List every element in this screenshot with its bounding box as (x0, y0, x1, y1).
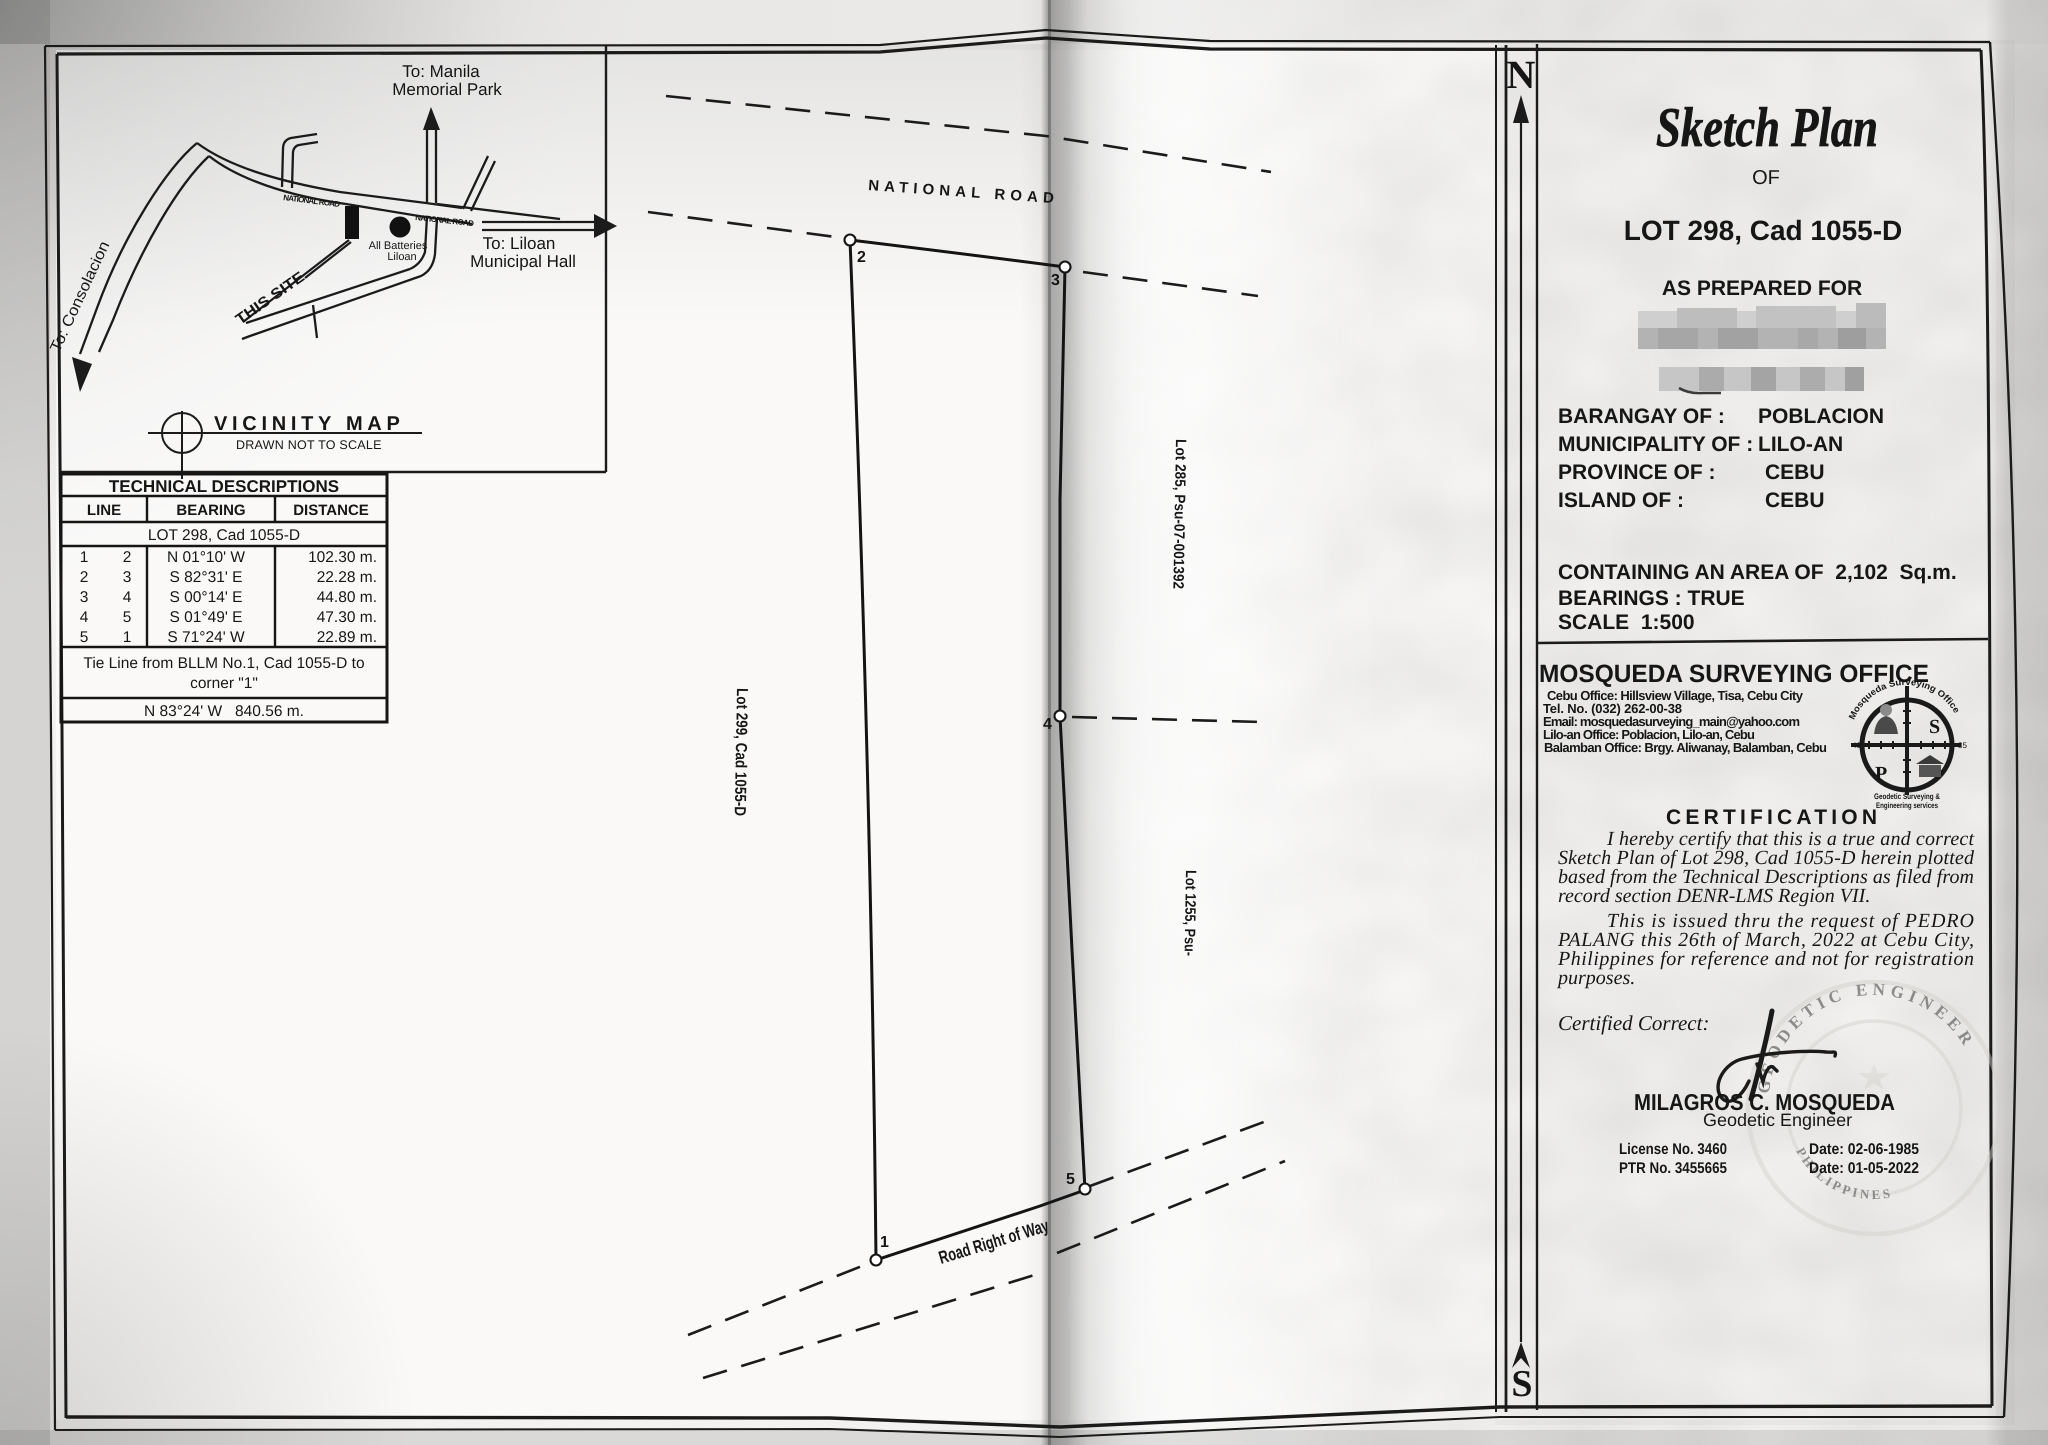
svg-text:TECHNICAL DESCRIPTIONS: TECHNICAL DESCRIPTIONS (109, 477, 339, 496)
svg-text:S 82°31' E: S 82°31' E (170, 569, 243, 586)
svg-text:LOT 298, Cad 1055-D: LOT 298, Cad 1055-D (1624, 215, 1903, 246)
svg-text:CEBU: CEBU (1765, 461, 1825, 484)
svg-text:S: S (1929, 716, 1940, 738)
svg-text:DISTANCE: DISTANCE (293, 502, 369, 519)
svg-text:License No. 3460: License No. 3460 (1619, 1141, 1727, 1158)
svg-text:BEARINGS : TRUE: BEARINGS : TRUE (1558, 587, 1745, 610)
svg-text:CERTIFICATION: CERTIFICATION (1666, 806, 1881, 829)
svg-text:Date: 02-06-1985: Date: 02-06-1985 (1809, 1141, 1919, 1158)
svg-text:1: 1 (80, 549, 89, 566)
svg-text:Memorial Park: Memorial Park (392, 80, 502, 99)
svg-text:Lot 299, Cad 1055-D: Lot 299, Cad 1055-D (731, 688, 750, 816)
svg-text:Sketch Plan: Sketch Plan (1656, 97, 1878, 159)
svg-text:4: 4 (123, 589, 132, 606)
svg-text:To: Manila: To: Manila (402, 62, 480, 81)
svg-text:3: 3 (123, 569, 132, 586)
svg-text:Date: 01-05-2022: Date: 01-05-2022 (1809, 1160, 1919, 1177)
svg-text:22.89 m.: 22.89 m. (317, 629, 377, 646)
svg-text:purposes.: purposes. (1556, 967, 1635, 989)
svg-text:N 01°10' W: N 01°10' W (167, 549, 245, 566)
svg-text:Engineering services: Engineering services (1876, 801, 1938, 810)
svg-text:3: 3 (1051, 272, 1060, 289)
svg-text:N 83°24' W 840.56 m.: N 83°24' W 840.56 m. (144, 703, 304, 720)
svg-text:record section DENR-LMS Region: record section DENR-LMS Region VII. (1558, 885, 1870, 907)
svg-text:5: 5 (1066, 1171, 1075, 1188)
svg-text:Tie Line from BLLM No.1, Cad 1: Tie Line from BLLM No.1, Cad 1055-D to (83, 655, 364, 672)
svg-text:85: 85 (1958, 741, 1967, 750)
svg-text:2: 2 (857, 249, 866, 266)
svg-text:MOSQUEDA SURVEYING OFFICE: MOSQUEDA SURVEYING OFFICE (1539, 660, 1929, 688)
svg-text:1: 1 (880, 1234, 889, 1251)
svg-text:N: N (1507, 52, 1536, 97)
svg-text:5: 5 (80, 629, 89, 646)
svg-text:PROVINCE OF :: PROVINCE OF : (1558, 461, 1716, 484)
svg-text:1: 1 (123, 629, 132, 646)
svg-text:corner "1": corner "1" (190, 675, 258, 692)
svg-text:S 00°14' E: S 00°14' E (170, 589, 243, 606)
svg-text:MUNICIPALITY OF :: MUNICIPALITY OF : (1558, 433, 1753, 456)
svg-text:ISLAND OF :: ISLAND OF : (1558, 489, 1684, 512)
svg-text:Lot 285, Psu-07-001392: Lot 285, Psu-07-001392 (1169, 439, 1189, 589)
svg-text:Balamban Office: Brgy. Aliwana: Balamban Office: Brgy. Aliwanay, Balamba… (1544, 740, 1827, 755)
svg-text:Certified Correct:: Certified Correct: (1558, 1011, 1709, 1035)
svg-text:SCALE 1:500: SCALE 1:500 (1558, 611, 1695, 634)
svg-text:102.30 m.: 102.30 m. (308, 549, 377, 566)
svg-text:3: 3 (80, 589, 89, 606)
svg-text:S 01°49' E: S 01°49' E (170, 609, 243, 626)
svg-text:Geodetic Surveying &: Geodetic Surveying & (1874, 792, 1940, 801)
svg-text:Municipal Hall: Municipal Hall (470, 252, 576, 271)
svg-text:49: 49 (1852, 741, 1861, 750)
svg-text:47.30 m.: 47.30 m. (317, 609, 377, 626)
svg-text:S: S (1511, 1363, 1532, 1405)
svg-text:VICINITY MAP: VICINITY MAP (214, 413, 404, 435)
svg-text:5: 5 (123, 609, 132, 626)
svg-text:LOT 298, Cad 1055-D: LOT 298, Cad 1055-D (148, 527, 300, 544)
svg-text:POBLACION: POBLACION (1758, 405, 1884, 428)
svg-text:LILO-AN: LILO-AN (1758, 433, 1843, 456)
svg-text:Liloan: Liloan (387, 251, 416, 263)
svg-text:P: P (1875, 763, 1887, 785)
svg-text:AS PREPARED FOR: AS PREPARED FOR (1662, 277, 1862, 300)
svg-text:CONTAINING AN AREA OF 2,102: CONTAINING AN AREA OF 2,102 Sq.m. (1558, 561, 1957, 584)
svg-text:To: Liloan: To: Liloan (483, 234, 556, 253)
svg-text:2: 2 (123, 549, 132, 566)
svg-text:BEARING: BEARING (176, 502, 245, 519)
svg-text:Lot 1255, Psu-: Lot 1255, Psu- (1180, 870, 1198, 956)
svg-text:CEBU: CEBU (1765, 489, 1825, 512)
svg-text:44.80 m.: 44.80 m. (317, 589, 377, 606)
svg-text:S 71°24' W: S 71°24' W (167, 629, 245, 646)
svg-text:Geodetic Engineer: Geodetic Engineer (1703, 1110, 1852, 1130)
svg-text:PTR No. 3455665: PTR No. 3455665 (1619, 1160, 1727, 1177)
svg-text:BARANGAY OF :: BARANGAY OF : (1558, 405, 1725, 428)
svg-text:4: 4 (1043, 716, 1052, 733)
svg-text:DRAWN NOT TO SCALE: DRAWN NOT TO SCALE (236, 438, 383, 452)
svg-text:LINE: LINE (87, 502, 121, 519)
svg-text:4: 4 (80, 609, 89, 626)
svg-text:22.28 m.: 22.28 m. (317, 569, 377, 586)
svg-text:OF: OF (1752, 167, 1780, 189)
svg-text:2: 2 (80, 569, 89, 586)
